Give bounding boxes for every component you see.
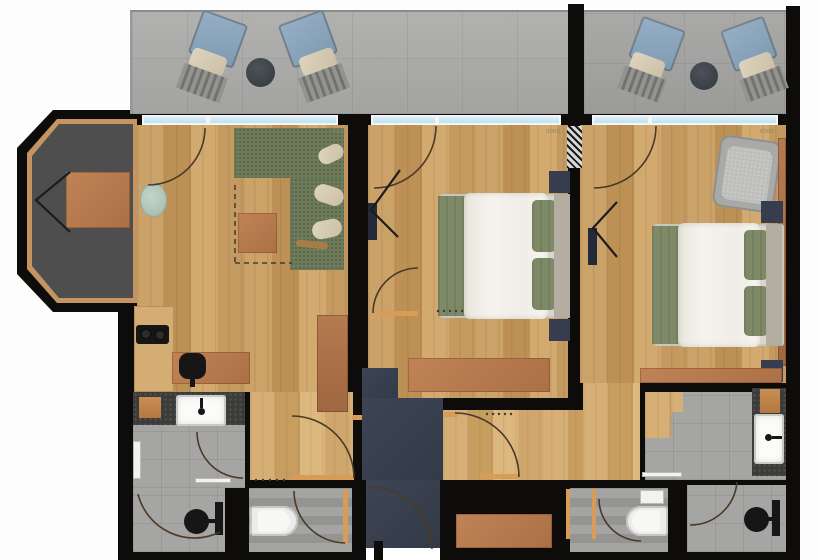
- hatched-wall-section: [567, 126, 582, 168]
- towels: [760, 389, 780, 413]
- luggage-bench: [408, 358, 550, 392]
- balcony-table: [690, 62, 718, 90]
- floor-plan: 000000000000: [0, 0, 820, 560]
- bathroom-2-wood-edge: [645, 392, 671, 438]
- toilet-cistern: [640, 490, 664, 504]
- wall-tv: [368, 203, 377, 240]
- bay-desk: [66, 172, 130, 228]
- stove-burner: [154, 329, 166, 341]
- window-glass: [594, 117, 648, 123]
- window-glass: [652, 117, 776, 123]
- sink-faucet: [198, 408, 205, 415]
- shower-arm: [206, 519, 216, 523]
- door-leaf: [343, 490, 348, 543]
- balcony-divider-wall: [568, 4, 584, 120]
- wardrobe: [317, 315, 348, 412]
- desk-chair-stem: [190, 378, 195, 387]
- window-glass: [439, 117, 559, 123]
- bed-pillow: [532, 200, 556, 252]
- bed-pillow: [744, 286, 768, 336]
- toilet-seat: [632, 510, 660, 532]
- door-leaf: [292, 475, 354, 480]
- window-glass: [144, 117, 206, 123]
- door-threshold: [195, 478, 231, 483]
- hallway-center-floor: [443, 410, 583, 480]
- wall-tv: [588, 228, 597, 265]
- entry-hall-floor: [362, 398, 443, 480]
- shower-arm: [764, 517, 774, 521]
- bed-headboard: [554, 194, 570, 318]
- window-glass: [373, 117, 435, 123]
- stove-burner: [140, 328, 152, 340]
- door-threshold: [642, 472, 682, 477]
- door-jamb: [444, 412, 458, 417]
- sink-faucet-stub: [772, 436, 782, 439]
- nightstand: [549, 319, 570, 341]
- entrance-door-leaf: [374, 541, 383, 560]
- bed-pillow: [532, 258, 556, 310]
- bed-headboard: [766, 224, 782, 346]
- door-leaf: [378, 311, 418, 316]
- bedroom-2-doorway-floor: [583, 383, 640, 480]
- entry-hall-floor: [366, 480, 440, 548]
- sink-faucet-stub: [200, 398, 203, 408]
- balcony-table: [246, 58, 275, 87]
- entry-hall-floor: [362, 368, 398, 398]
- wc-door-jamb: [566, 489, 570, 539]
- nightstand: [549, 171, 570, 193]
- wc-door-jamb: [592, 489, 596, 539]
- hall-closet-bench: [456, 514, 552, 548]
- sink-faucet: [765, 434, 772, 441]
- door-leaf: [480, 474, 519, 479]
- luggage-bench: [640, 368, 782, 383]
- bed-pillow: [744, 230, 768, 280]
- kitchen-counter: [134, 306, 174, 392]
- shower-rail: [215, 502, 223, 535]
- nightstand: [761, 201, 783, 223]
- towel-radiator: [133, 441, 141, 479]
- armchair-cushion: [720, 145, 773, 205]
- toilet-seat: [258, 510, 290, 532]
- bath-stool: [139, 397, 161, 418]
- window-glass: [210, 117, 336, 123]
- desk-chair: [179, 353, 206, 379]
- balcony-outer-wall: [786, 6, 800, 120]
- ottoman: [140, 183, 167, 217]
- bathroom-2-wood-edge: [671, 392, 683, 412]
- door-jamb: [352, 415, 362, 420]
- coffee-table: [238, 213, 277, 253]
